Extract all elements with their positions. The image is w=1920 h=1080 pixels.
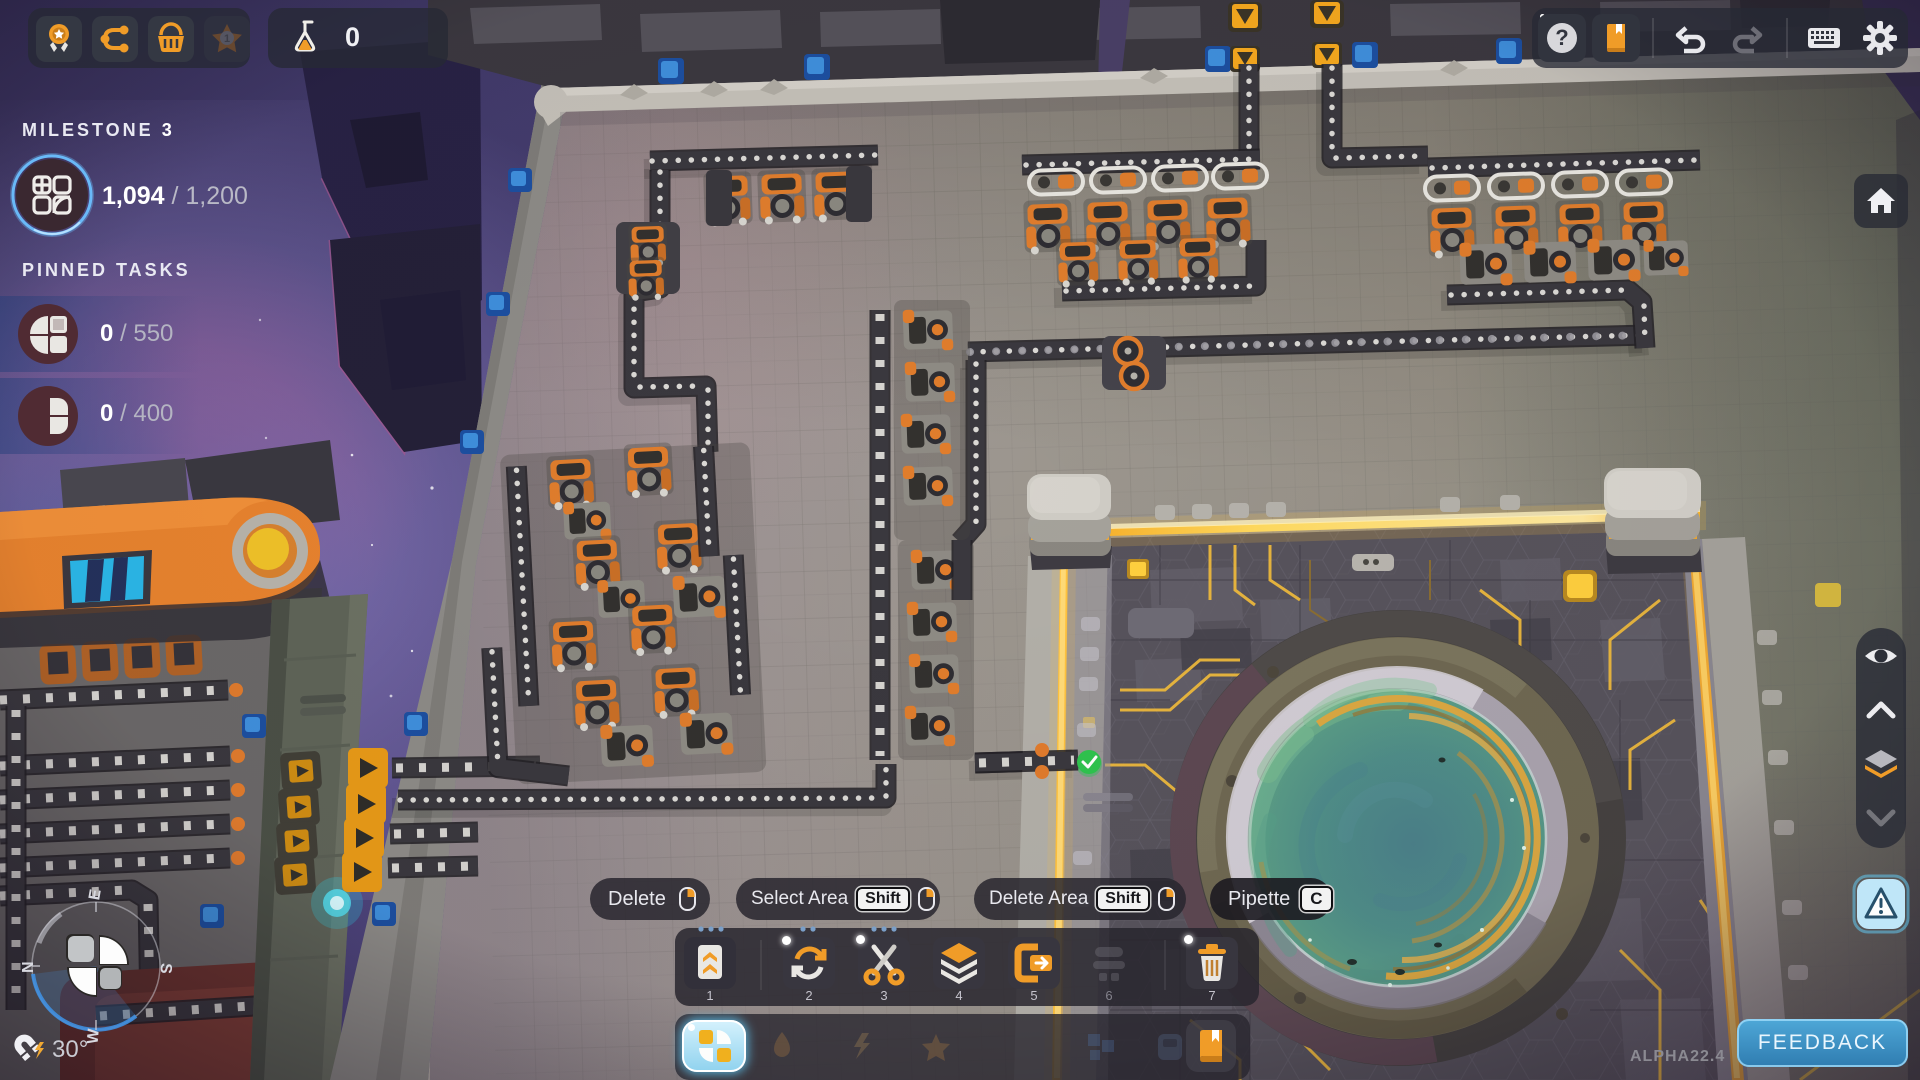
svg-text:S: S [156, 962, 174, 974]
svg-text:?: ? [1555, 25, 1568, 50]
svg-text:1: 1 [224, 33, 230, 45]
svg-text:N: N [20, 961, 37, 973]
svg-text:E: E [86, 888, 105, 902]
